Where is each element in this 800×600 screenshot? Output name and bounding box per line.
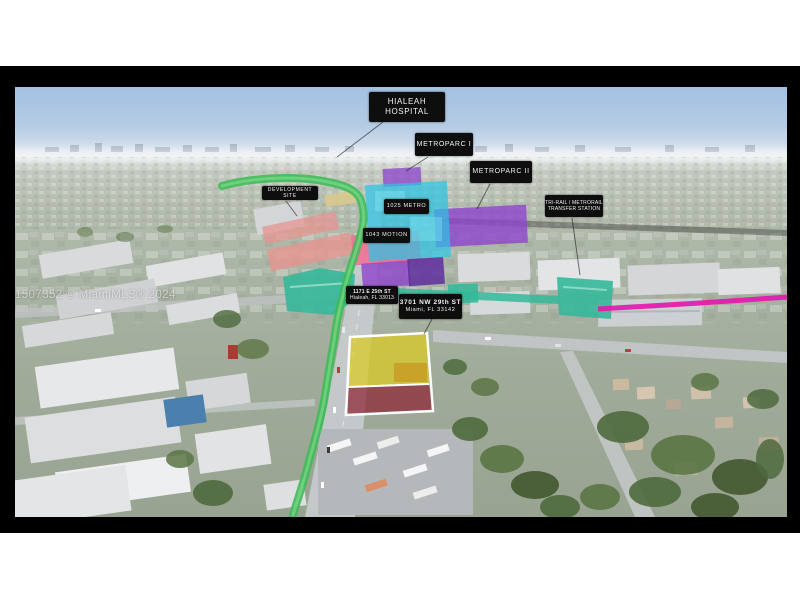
- photo-frame: HIALEAH HOSPITAL METROPARC I METROPARC I…: [0, 66, 800, 533]
- label-line: TRANSFER STATION: [548, 206, 600, 213]
- label-line: 1025 METRO: [387, 203, 427, 210]
- label-address-subject: 3701 NW 29th ST Miami, FL 33142: [399, 294, 462, 319]
- label-1043-motion: 1043 MOTION: [363, 228, 410, 243]
- label-line: HIALEAH: [388, 97, 426, 107]
- label-line: METROPARC I: [417, 140, 472, 149]
- label-1025-metro: 1025 METRO: [384, 199, 429, 214]
- mls-watermark: A11507352 © MiamiMLS® 2024: [15, 289, 176, 301]
- label-hialeah-hospital: HIALEAH HOSPITAL: [369, 92, 445, 122]
- label-address-hialeah: 1171 E 25th ST Hialeah, FL 33013: [346, 286, 398, 304]
- label-line: HOSPITAL: [385, 107, 429, 117]
- label-metroparc-ii: METROPARC II: [470, 161, 532, 183]
- label-line: Hialeah, FL 33013: [350, 295, 394, 302]
- subject-site-highlight: [346, 333, 433, 415]
- aerial-photo: HIALEAH HOSPITAL METROPARC I METROPARC I…: [15, 87, 787, 517]
- label-transfer-station: TRI-RAIL / METRORAIL TRANSFER STATION: [545, 195, 603, 217]
- label-metroparc-i: METROPARC I: [415, 133, 473, 156]
- label-line: 1043 MOTION: [365, 232, 407, 239]
- label-line: DEVELOPMENT SITE: [262, 187, 318, 200]
- metro-cyan-highlight: [365, 181, 451, 261]
- mls-listing-photo-page: HIALEAH HOSPITAL METROPARC I METROPARC I…: [0, 0, 800, 600]
- label-line: 3701 NW 29th ST: [400, 299, 461, 307]
- label-line: Miami, FL 33142: [406, 307, 456, 314]
- label-line: METROPARC II: [472, 167, 529, 176]
- label-development-site: DEVELOPMENT SITE: [262, 186, 318, 200]
